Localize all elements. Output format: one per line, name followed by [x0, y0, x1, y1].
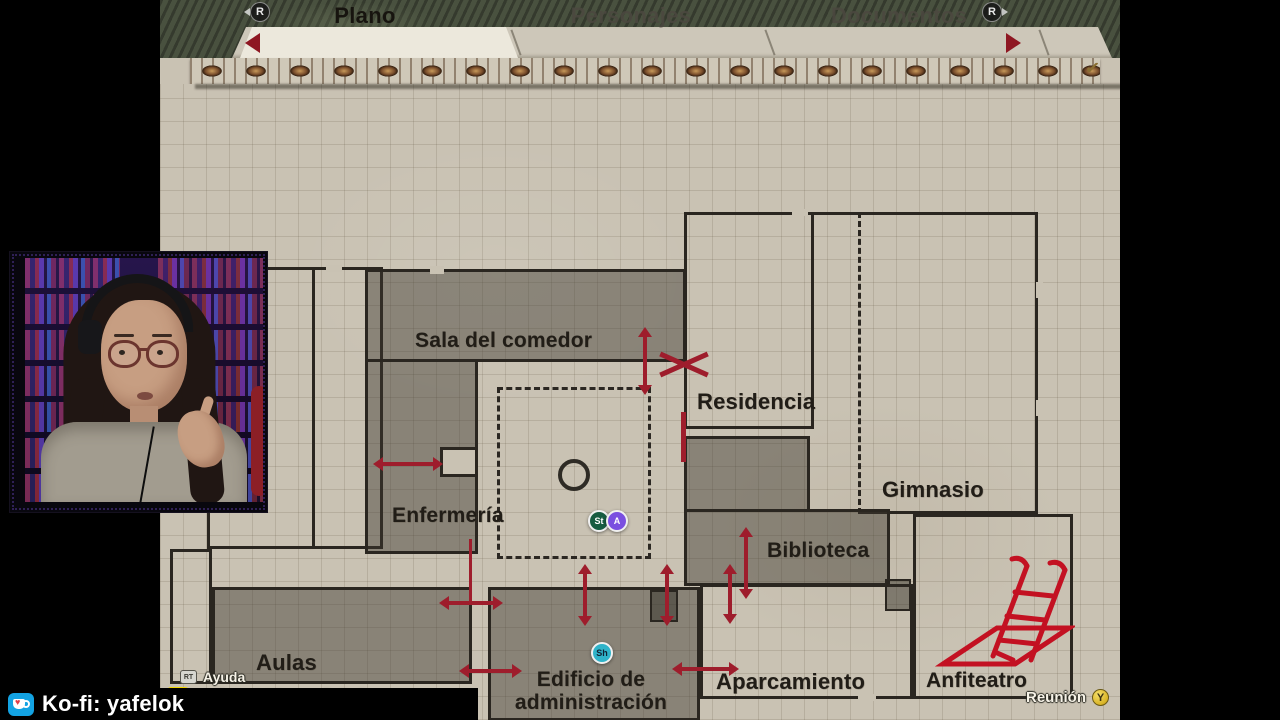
- door-arrow-icon: [665, 573, 669, 617]
- headphones-earcup: [78, 320, 102, 354]
- room-small-annex: [440, 447, 478, 477]
- room-label-residencia: Residencia: [697, 389, 815, 415]
- kofi-bar: Ko-fi: yafelok: [0, 688, 478, 720]
- room-residencia-annex: [684, 436, 810, 512]
- door-arrow-icon: [583, 573, 587, 617]
- gaming-chair: [251, 386, 263, 496]
- game-screen: Plano Personajes Documentos ✓: [160, 0, 1120, 720]
- tab-plano[interactable]: Plano: [300, 0, 430, 31]
- map-edge-shading: [195, 84, 1120, 89]
- door-gap: [1036, 400, 1043, 416]
- ayuda-label: Ayuda: [203, 669, 245, 685]
- kofi-cup-icon: [8, 693, 34, 716]
- tab-divider: [764, 29, 775, 55]
- room-label-administracion: Edificio de administración: [491, 668, 691, 714]
- right-shoulder-button[interactable]: R: [982, 2, 1002, 22]
- glasses-bridge: [140, 348, 148, 351]
- player-badge-sh: Sh: [591, 642, 613, 664]
- door-arrow-icon: [744, 536, 748, 590]
- door-arrow-icon: [643, 336, 647, 386]
- wall: [814, 212, 860, 215]
- right-shoulder-label: R: [988, 6, 996, 18]
- locked-door-marker: [469, 539, 472, 601]
- kofi-label: Ko-fi: yafelok: [42, 691, 184, 717]
- door-arrow-icon: [728, 573, 732, 615]
- tab-band: [232, 27, 1112, 58]
- ornament-band: [190, 58, 1100, 84]
- ayuda-hint[interactable]: RT Ayuda: [180, 669, 245, 685]
- eye: [119, 350, 125, 355]
- eye: [157, 350, 163, 355]
- glasses-lens: [146, 340, 179, 368]
- campus-map: Sala del comedor Enfermería Residencia G…: [160, 84, 1120, 720]
- blocked-x-icon: [658, 346, 710, 384]
- tab-documentos[interactable]: Documentos: [824, 0, 974, 31]
- screen: Plano Personajes Documentos ✓: [0, 0, 1280, 720]
- left-shoulder-label: R: [256, 6, 264, 18]
- room-aulas: [212, 587, 472, 684]
- player-badge-a: A: [606, 510, 628, 532]
- door-arrow-icon: [448, 601, 494, 605]
- door-gap: [792, 209, 808, 216]
- locked-door-marker: [681, 412, 686, 462]
- door-gap: [1036, 282, 1043, 298]
- room-label-aulas: Aulas: [256, 650, 317, 676]
- door-arrow-icon: [382, 462, 434, 466]
- tab-personajes[interactable]: Personajes: [556, 0, 706, 31]
- eyebrow: [114, 334, 134, 337]
- streamer-face: [101, 300, 187, 412]
- left-triangle-icon: [244, 8, 250, 16]
- glasses-lens: [108, 340, 141, 368]
- tab-divider: [1038, 29, 1049, 55]
- door-gap: [326, 265, 342, 272]
- tab-prev-arrow-icon[interactable]: [245, 33, 260, 53]
- rt-button-icon: RT: [180, 670, 197, 684]
- tab-next-arrow-icon[interactable]: [1006, 33, 1021, 53]
- room-outline-southwest: [170, 549, 212, 684]
- door-gap: [430, 266, 444, 274]
- kofi-cup: [13, 699, 25, 709]
- room-label-enfermeria: Enfermería: [392, 504, 504, 528]
- room-label-gimnasio: Gimnasio: [882, 477, 984, 503]
- webcam-overlay: [10, 252, 267, 512]
- room-gimnasio: [858, 212, 1038, 514]
- right-triangle-icon: [1002, 8, 1008, 16]
- y-button-icon: Y: [1092, 689, 1109, 706]
- door-gap: [858, 694, 876, 701]
- player-position-marker: [558, 459, 590, 491]
- webcam-video: [25, 258, 263, 502]
- room-label-aparcamiento: Aparcamiento: [716, 669, 865, 695]
- mouth: [137, 392, 153, 400]
- ornament-end-mark: ✓: [1084, 57, 1102, 80]
- reunion-hint[interactable]: Reunión Y: [1026, 689, 1109, 706]
- room-label-biblioteca: Biblioteca: [767, 539, 869, 563]
- active-tab-highlight: [240, 27, 518, 58]
- top-texture-strip: Plano Personajes Documentos: [160, 0, 1120, 58]
- reunion-label: Reunión: [1026, 689, 1086, 706]
- room-label-sala: Sala del comedor: [415, 329, 592, 353]
- eyebrow: [152, 334, 172, 337]
- left-shoulder-button[interactable]: R: [250, 2, 270, 22]
- room-label-anfiteatro: Anfiteatro: [926, 669, 1027, 693]
- wall: [312, 267, 315, 549]
